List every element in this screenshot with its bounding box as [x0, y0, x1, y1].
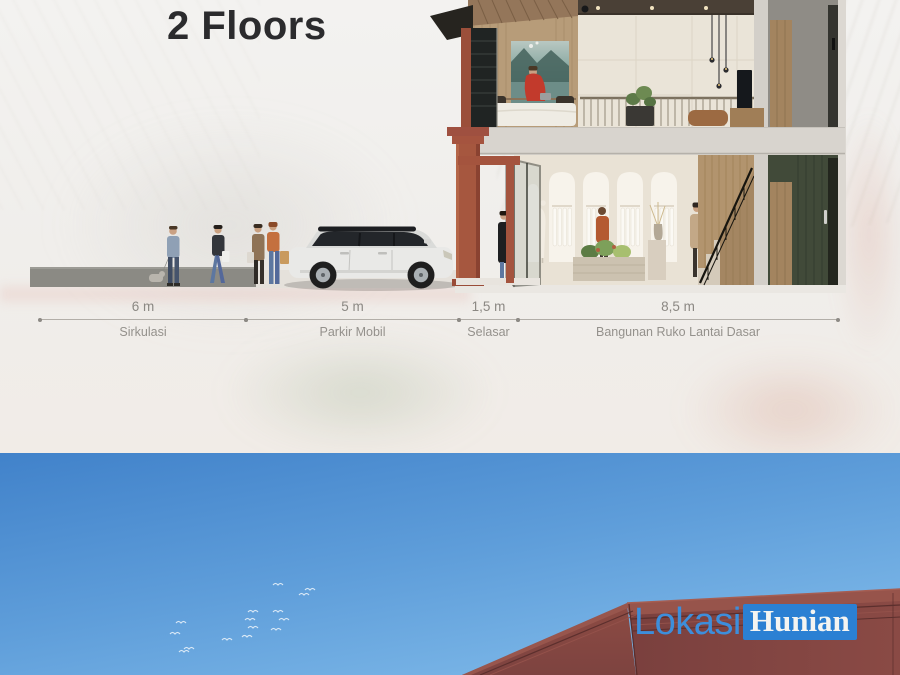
rear-green-room — [768, 155, 838, 285]
section-drawing-panel: 2 Floors — [0, 0, 900, 454]
dimension-dot-icon — [38, 318, 42, 322]
lower-floor-shop — [456, 155, 838, 286]
property-brochure-page: 2 Floors — [0, 0, 900, 675]
dimension-label: Bangunan Ruko Lantai Dasar — [518, 325, 838, 339]
dimension-dot-icon — [244, 318, 248, 322]
dimension-parkir-mobil: 5 m Parkir Mobil — [246, 298, 459, 339]
birds-icon — [170, 583, 315, 652]
upper-floor-bedroom — [468, 0, 838, 127]
watermark-logo: Lokasi Hunian — [634, 603, 857, 641]
dimension-value: 5 m — [246, 298, 459, 316]
building-section-illustration — [0, 0, 900, 455]
dimension-dot-icon — [836, 318, 840, 322]
exterior-photo-panel — [0, 453, 900, 675]
dimension-sirkulasi: 6 m Sirkulasi — [40, 298, 246, 339]
dimension-label: Parkir Mobil — [246, 325, 459, 339]
dimension-selasar: 1,5 m Selasar — [459, 298, 518, 339]
dimension-line — [246, 316, 459, 323]
dimension-value: 6 m — [40, 298, 246, 316]
dimension-value: 1,5 m — [459, 298, 518, 316]
watermark-hunian-badge: Hunian — [743, 604, 857, 640]
dimension-label: Selasar — [459, 325, 518, 339]
staircase — [698, 155, 754, 285]
dimension-bangunan-ruko: 8,5 m Bangunan Ruko Lantai Dasar — [518, 298, 838, 339]
floor-slab — [480, 127, 845, 155]
selasar-step — [456, 278, 540, 285]
dimension-line — [518, 316, 838, 323]
portal-post — [506, 165, 514, 283]
canopy-beam — [458, 156, 520, 165]
dimension-dot-icon — [457, 318, 461, 322]
table — [688, 110, 728, 126]
photo-illustration — [0, 453, 900, 675]
dimension-line — [40, 316, 246, 323]
tv — [737, 70, 752, 114]
building-cutaway — [430, 0, 846, 286]
watermark-lokasi-text: Lokasi — [634, 603, 741, 641]
watermark-hunian-text: Hunian — [750, 603, 850, 638]
dimension-value: 8,5 m — [518, 298, 838, 316]
dimension-row: 6 m Sirkulasi 5 m Parkir Mobil 1,5 m Sel… — [40, 298, 838, 339]
dimension-dot-icon — [516, 318, 520, 322]
dimension-label: Sirkulasi — [40, 325, 246, 339]
dimension-line — [459, 316, 518, 323]
